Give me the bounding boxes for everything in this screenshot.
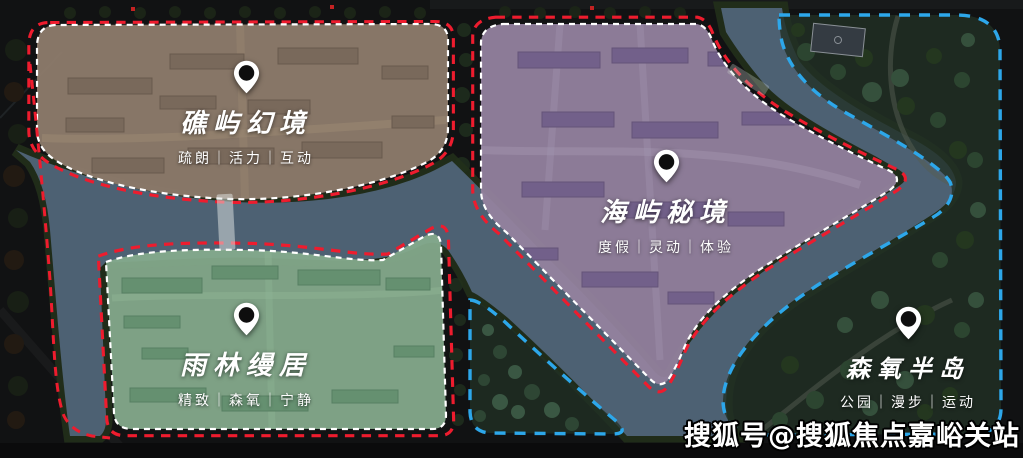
map-canvas: 礁屿幻境 疏朗｜活力｜互动 海屿秘境 度假｜灵动｜体验 雨林缦居 精致｜森氧｜宁…: [0, 0, 1023, 458]
bridge: [217, 194, 236, 251]
zone-area-yulin: [98, 226, 453, 436]
basketball-court: [811, 23, 866, 56]
zone-area-jiaoyu: [29, 21, 454, 202]
watermark: 搜狐号@搜狐焦点嘉峪关站: [684, 414, 1020, 453]
site-plan-svg: [0, 0, 1023, 458]
